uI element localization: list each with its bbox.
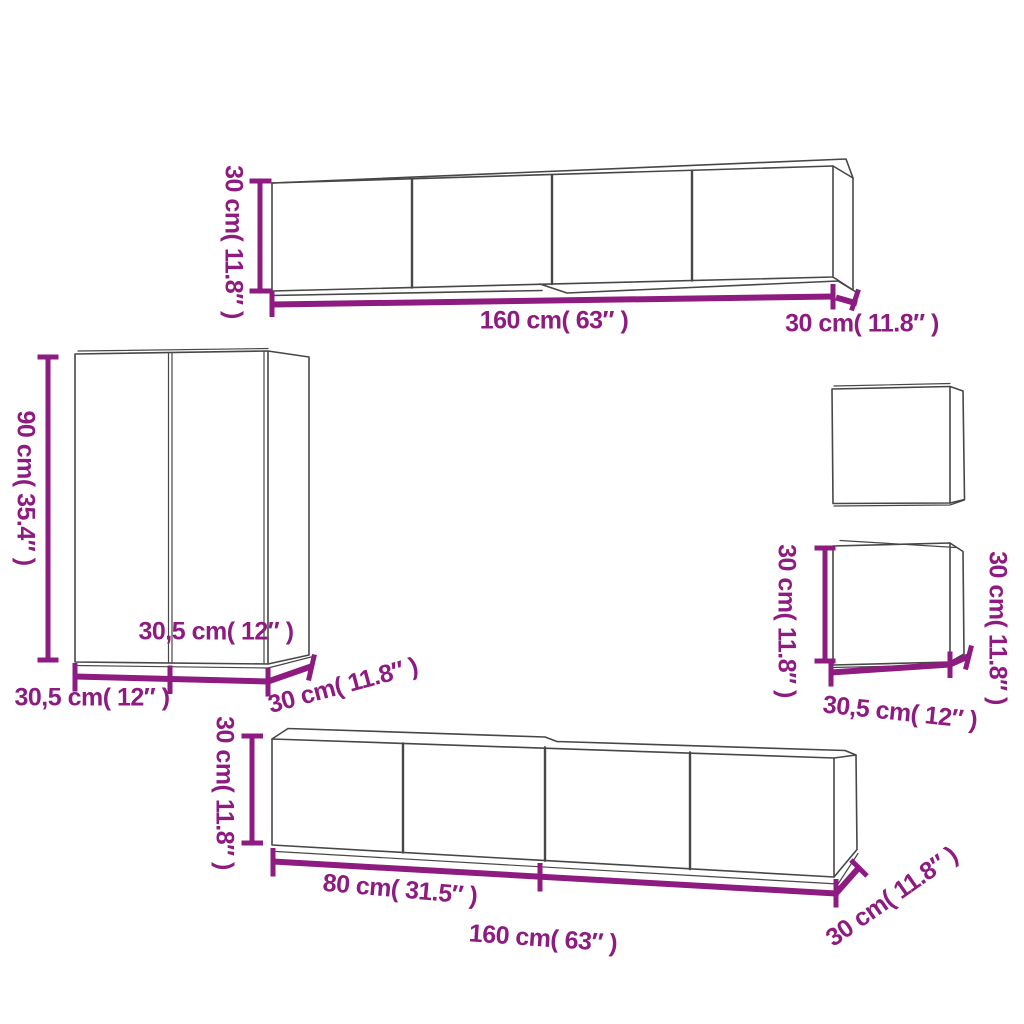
- small-cabinet-height-label-right: 30 cm( 11.8″ ): [983, 551, 1012, 705]
- tall-cabinet-width-label: 30,5 cm( 12″ ): [14, 684, 169, 713]
- product-dimension-diagram: 30 cm( 11.8″ ) 160 cm( 63″ ) 30 cm( 11.8…: [0, 0, 1024, 1024]
- bottom-bench-height-label: 30 cm( 11.8″ ): [210, 716, 239, 870]
- top-tv-cabinet-dimension-lines: [250, 181, 859, 317]
- small-cabinet-dimension-lines: [815, 548, 972, 687]
- tall-cabinet-door-width-label: 30,5 cm( 12″ ): [138, 618, 293, 647]
- small-cabinet-upper-outline: [832, 384, 965, 507]
- top-cabinet-depth-label: 30 cm( 11.8″ ): [785, 310, 939, 339]
- furniture-line-drawing: [0, 0, 1024, 1024]
- top-cabinet-width-label: 160 cm( 63″ ): [480, 307, 629, 336]
- tall-cabinet-height-label: 90 cm( 35.4″ ): [11, 410, 40, 565]
- small-cabinet-height-label-left: 30 cm( 11.8″ ): [772, 544, 801, 698]
- bottom-tv-bench-outline: [272, 729, 858, 885]
- top-tv-cabinet-outline: [272, 159, 856, 296]
- top-cabinet-height-label: 30 cm( 11.8″ ): [219, 165, 248, 319]
- small-cabinet-lower-outline: [833, 541, 964, 668]
